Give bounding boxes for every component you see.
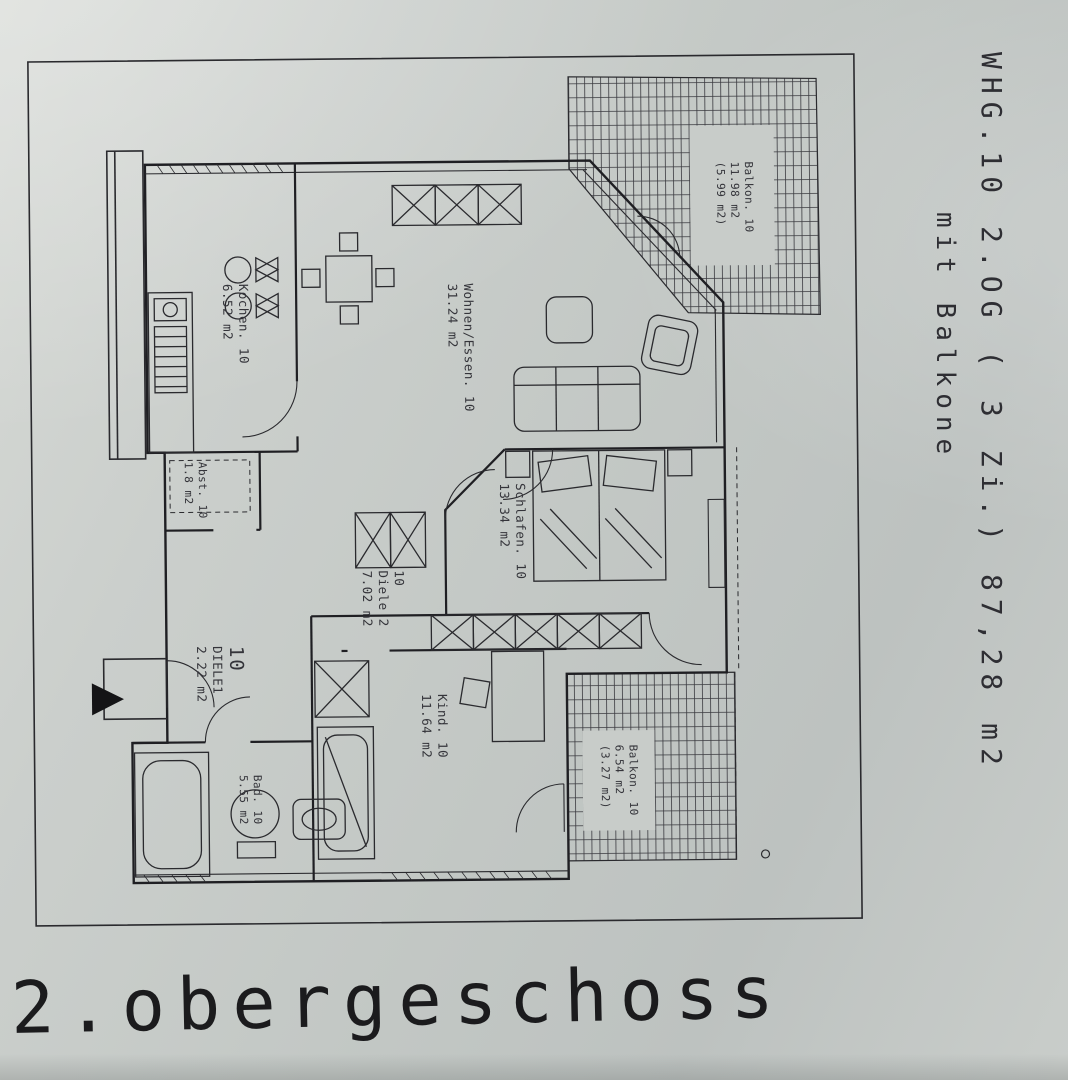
room-label-balkon-bottom: Balkon. 10 6.54 m2 (3.27 m2) xyxy=(597,745,640,817)
room-label-kind: Kind. 10 11.64 m2 xyxy=(418,694,451,759)
bathtub-icon xyxy=(135,752,210,877)
room-label-diele1: 10 DIELE1 2.22 m2 xyxy=(193,646,247,703)
party-wall xyxy=(107,151,146,459)
room-label-abst: Abst. 10 1.8 m2 xyxy=(181,462,210,519)
room-label-diele2: 10 Diele 2 7.02 m2 xyxy=(359,570,408,627)
floorplan-photo: Balkon. 10 11.98 m2 (5.99 m2) Kochen. 10… xyxy=(0,0,1068,1080)
balcony-note-text: mit Balkone xyxy=(930,212,960,461)
window-ticks xyxy=(137,161,552,883)
room-label-kochen: Kochen. 10 6.52 m2 xyxy=(219,284,252,365)
bath-sink-icon xyxy=(293,799,345,839)
overhang-dashed-line xyxy=(737,447,739,672)
room-label-schlafen: Schlafen. 10 13.34 m2 xyxy=(496,483,529,580)
entrance xyxy=(92,659,168,720)
entrance-arrow-icon xyxy=(92,683,124,715)
armchair-icon xyxy=(640,313,700,376)
apartment-info-text: WHG.10 2.OG ( 3 Zi.) 87,28 m2 xyxy=(975,52,1008,773)
coffee-table-icon xyxy=(546,297,592,343)
plan-sheet: Balkon. 10 11.98 m2 (5.99 m2) Kochen. 10… xyxy=(24,46,868,934)
room-label-balkon-top: Balkon. 10 11.98 m2 (5.99 m2) xyxy=(713,161,756,233)
desk-icon xyxy=(459,651,544,742)
dining-table-icon xyxy=(302,232,395,324)
room-label-wohnen-essen: Wohnen/Essen. 10 31.24 m2 xyxy=(444,283,477,412)
room-label-bad: Bad. 10 5.55 m2 xyxy=(236,775,264,825)
double-bed-icon xyxy=(506,450,693,582)
sheet-title: 2.obergeschoss xyxy=(10,950,786,1050)
balcony-top-hatch xyxy=(568,74,820,316)
sofa-icon xyxy=(514,366,641,431)
kitchen-counter-icon xyxy=(148,292,194,452)
